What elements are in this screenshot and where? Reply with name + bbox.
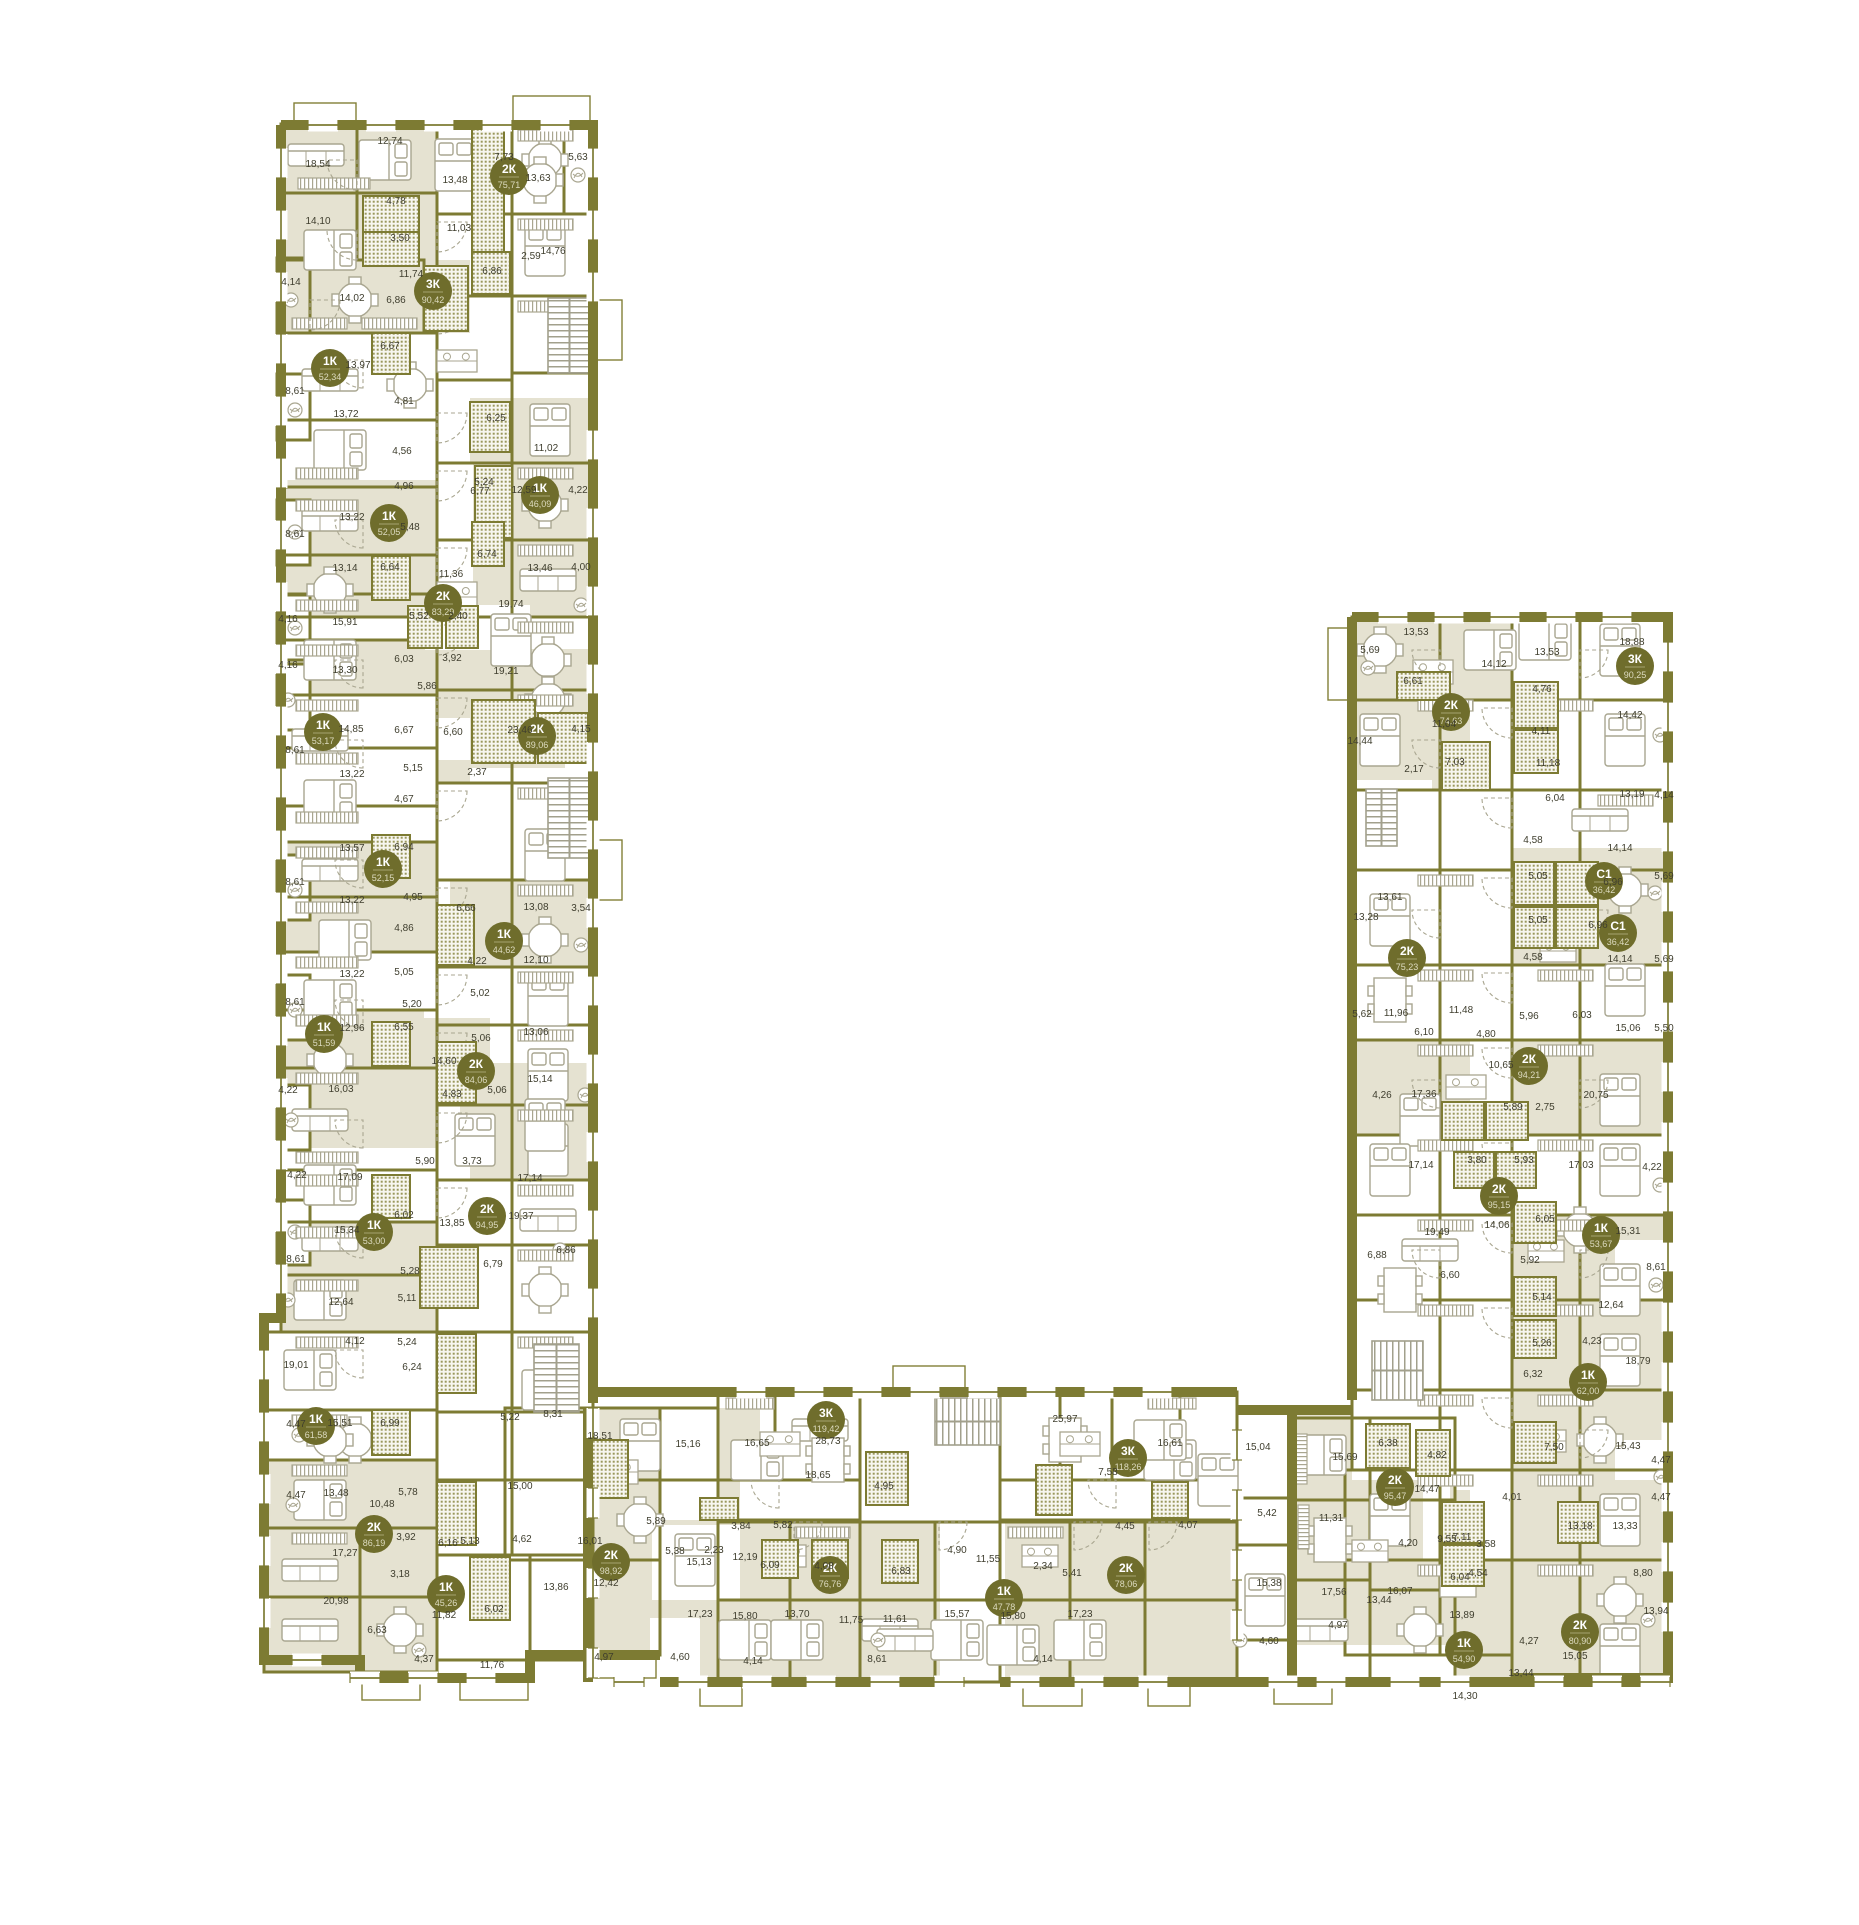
- svg-text:2,23: 2,23: [704, 1545, 724, 1556]
- svg-text:17,09: 17,09: [337, 1172, 362, 1183]
- svg-text:6,09: 6,09: [760, 1560, 780, 1571]
- svg-text:4,67: 4,67: [394, 794, 414, 805]
- svg-text:13,53: 13,53: [1403, 627, 1428, 638]
- svg-text:14,12: 14,12: [1481, 659, 1506, 670]
- svg-text:4,14: 4,14: [1033, 1654, 1053, 1665]
- svg-text:5,20: 5,20: [402, 999, 422, 1010]
- svg-text:5,06: 5,06: [487, 1085, 507, 1096]
- svg-text:4,16: 4,16: [278, 614, 298, 625]
- svg-text:1К: 1К: [439, 1580, 454, 1594]
- svg-text:14,02: 14,02: [339, 293, 364, 304]
- svg-text:3,58: 3,58: [1476, 1539, 1496, 1550]
- svg-text:95,15: 95,15: [1488, 1200, 1511, 1210]
- svg-text:4,86: 4,86: [394, 923, 414, 934]
- svg-text:61,58: 61,58: [305, 1430, 328, 1440]
- svg-text:11,96: 11,96: [1384, 1008, 1409, 1019]
- svg-text:13,44: 13,44: [1366, 1595, 1391, 1606]
- svg-text:4,76: 4,76: [1532, 684, 1552, 695]
- svg-text:3,92: 3,92: [442, 653, 462, 664]
- svg-text:8,61: 8,61: [1646, 1262, 1666, 1273]
- svg-text:90,42: 90,42: [422, 295, 445, 305]
- svg-text:5,89: 5,89: [646, 1516, 666, 1527]
- svg-text:5,69: 5,69: [1360, 645, 1380, 656]
- svg-text:5,38: 5,38: [665, 1546, 685, 1557]
- svg-text:7,73: 7,73: [494, 152, 514, 163]
- svg-text:5,06: 5,06: [471, 1033, 491, 1044]
- svg-text:6,63: 6,63: [367, 1625, 387, 1636]
- svg-text:13,48: 13,48: [442, 175, 467, 186]
- svg-text:13,22: 13,22: [339, 769, 364, 780]
- svg-text:11,18: 11,18: [1536, 758, 1561, 769]
- svg-text:13,94: 13,94: [1643, 1606, 1668, 1617]
- svg-text:14,42: 14,42: [1617, 710, 1642, 721]
- svg-text:13,33: 13,33: [1612, 1521, 1637, 1532]
- svg-text:4,23: 4,23: [1582, 1336, 1602, 1347]
- svg-text:75,71: 75,71: [498, 180, 521, 190]
- svg-text:6,05: 6,05: [1535, 1214, 1555, 1225]
- svg-text:15,14: 15,14: [527, 1074, 552, 1085]
- svg-text:12,59: 12,59: [511, 485, 536, 496]
- svg-text:4,22: 4,22: [1642, 1162, 1662, 1173]
- svg-text:52,15: 52,15: [372, 873, 395, 883]
- svg-text:13,72: 13,72: [333, 409, 358, 420]
- svg-text:6,24: 6,24: [402, 1362, 422, 1373]
- svg-text:13,22: 13,22: [339, 969, 364, 980]
- svg-text:80,90: 80,90: [1569, 1636, 1592, 1646]
- svg-text:6,86: 6,86: [386, 295, 406, 306]
- svg-text:2К: 2К: [1492, 1182, 1507, 1196]
- svg-text:53,67: 53,67: [1590, 1239, 1613, 1249]
- svg-text:1К: 1К: [376, 855, 391, 869]
- svg-text:14,47: 14,47: [1414, 1484, 1439, 1495]
- svg-text:16,61: 16,61: [1157, 1438, 1182, 1449]
- svg-text:8,80: 8,80: [1633, 1568, 1653, 1579]
- svg-text:7,50: 7,50: [1544, 1442, 1564, 1453]
- svg-text:1К: 1К: [367, 1218, 382, 1232]
- svg-text:4,00: 4,00: [571, 562, 591, 573]
- svg-text:10,65: 10,65: [1488, 1060, 1513, 1071]
- svg-text:3К: 3К: [1628, 652, 1643, 666]
- svg-text:14,14: 14,14: [1607, 843, 1632, 854]
- svg-text:4,26: 4,26: [1372, 1090, 1392, 1101]
- svg-text:5,15: 5,15: [403, 763, 423, 774]
- svg-text:17,14: 17,14: [1408, 1160, 1433, 1171]
- svg-text:51,59: 51,59: [313, 1038, 336, 1048]
- svg-text:3,54: 3,54: [571, 903, 591, 914]
- svg-text:15,57: 15,57: [944, 1609, 969, 1620]
- svg-text:5,05: 5,05: [394, 967, 414, 978]
- svg-text:13,89: 13,89: [1449, 1610, 1474, 1621]
- svg-text:2К: 2К: [604, 1548, 619, 1562]
- svg-text:52,34: 52,34: [319, 372, 342, 382]
- svg-text:62,00: 62,00: [1577, 1386, 1600, 1396]
- svg-text:11,61: 11,61: [883, 1614, 908, 1625]
- svg-text:5,50: 5,50: [1654, 1023, 1674, 1034]
- svg-text:2К: 2К: [1444, 698, 1459, 712]
- svg-text:4,80: 4,80: [1476, 1029, 1496, 1040]
- svg-text:6,88: 6,88: [1367, 1250, 1387, 1261]
- svg-text:90,25: 90,25: [1624, 670, 1647, 680]
- svg-text:2К: 2К: [1119, 1561, 1134, 1575]
- svg-text:15,34: 15,34: [334, 1225, 359, 1236]
- svg-text:11,48: 11,48: [1449, 1005, 1474, 1016]
- svg-text:3,50: 3,50: [390, 233, 410, 244]
- svg-text:5,52: 5,52: [409, 611, 429, 622]
- svg-text:4,97: 4,97: [1328, 1620, 1348, 1631]
- svg-text:4,58: 4,58: [1523, 835, 1543, 846]
- svg-text:12,19: 12,19: [732, 1552, 757, 1563]
- svg-text:4,14: 4,14: [743, 1656, 763, 1667]
- svg-text:12,10: 12,10: [523, 955, 548, 966]
- svg-text:6,55: 6,55: [394, 1022, 414, 1033]
- svg-text:4,14: 4,14: [281, 277, 301, 288]
- svg-text:18,54: 18,54: [305, 159, 330, 170]
- svg-text:118,26: 118,26: [1115, 1462, 1142, 1472]
- svg-text:5,22: 5,22: [500, 1412, 520, 1423]
- svg-text:12,64: 12,64: [328, 1297, 353, 1308]
- svg-text:19,21: 19,21: [493, 666, 518, 677]
- svg-text:2,17: 2,17: [1404, 764, 1424, 775]
- svg-text:13,30: 13,30: [332, 665, 357, 676]
- svg-text:17,27: 17,27: [332, 1548, 357, 1559]
- svg-text:3К: 3К: [1121, 1444, 1136, 1458]
- svg-text:4,07: 4,07: [1178, 1520, 1198, 1531]
- svg-text:6,16: 6,16: [438, 1538, 458, 1549]
- svg-text:5,92: 5,92: [1520, 1255, 1540, 1266]
- svg-text:6,02: 6,02: [484, 1604, 504, 1615]
- svg-text:13,86: 13,86: [543, 1582, 568, 1593]
- svg-text:14,44: 14,44: [1347, 736, 1372, 747]
- svg-text:15,38: 15,38: [1256, 1578, 1281, 1589]
- svg-text:7,03: 7,03: [1445, 757, 1465, 768]
- svg-text:4,60: 4,60: [1259, 1636, 1279, 1647]
- svg-text:4,11: 4,11: [1532, 726, 1551, 737]
- svg-text:12,96: 12,96: [339, 1023, 364, 1034]
- svg-text:1К: 1К: [497, 927, 512, 941]
- svg-text:4,83: 4,83: [442, 1089, 462, 1100]
- svg-text:53,17: 53,17: [312, 736, 335, 746]
- svg-text:15,04: 15,04: [1245, 1442, 1270, 1453]
- svg-text:11,03: 11,03: [447, 223, 472, 234]
- svg-text:2К: 2К: [469, 1057, 484, 1071]
- svg-text:5,05: 5,05: [1528, 915, 1548, 926]
- svg-text:2,75: 2,75: [1535, 1102, 1555, 1113]
- svg-text:11,55: 11,55: [976, 1554, 1001, 1565]
- svg-text:4,22: 4,22: [467, 956, 487, 967]
- svg-text:15,16: 15,16: [675, 1439, 700, 1450]
- svg-text:8,61: 8,61: [285, 997, 305, 1008]
- svg-text:1К: 1К: [323, 354, 338, 368]
- svg-text:94,95: 94,95: [476, 1220, 499, 1230]
- svg-text:4,95: 4,95: [874, 1481, 894, 1492]
- svg-text:8,61: 8,61: [285, 877, 305, 888]
- svg-text:11,74: 11,74: [399, 269, 424, 280]
- svg-text:6,96: 6,96: [1588, 920, 1608, 931]
- svg-text:78,06: 78,06: [1115, 1579, 1138, 1589]
- svg-text:18,79: 18,79: [1625, 1356, 1650, 1367]
- svg-text:13,57: 13,57: [339, 843, 364, 854]
- svg-text:6,03: 6,03: [1572, 1010, 1592, 1021]
- svg-text:4,58: 4,58: [1523, 952, 1543, 963]
- svg-text:3,92: 3,92: [396, 1532, 416, 1543]
- svg-text:18,88: 18,88: [1619, 637, 1644, 648]
- svg-text:19,49: 19,49: [1424, 1227, 1449, 1238]
- svg-text:54,90: 54,90: [1453, 1654, 1476, 1664]
- svg-text:5,96: 5,96: [1519, 1011, 1539, 1022]
- svg-text:5,82: 5,82: [773, 1520, 793, 1531]
- svg-text:15,69: 15,69: [1332, 1452, 1357, 1463]
- svg-text:11,31: 11,31: [1319, 1513, 1344, 1524]
- svg-text:13,28: 13,28: [1353, 912, 1378, 923]
- svg-text:4,82: 4,82: [1427, 1450, 1447, 1461]
- svg-text:4,01: 4,01: [1502, 1492, 1522, 1503]
- svg-text:13,61: 13,61: [1377, 892, 1402, 903]
- svg-text:8,61: 8,61: [285, 386, 305, 397]
- svg-text:18,51: 18,51: [587, 1431, 612, 1442]
- svg-text:4,78: 4,78: [386, 196, 406, 207]
- svg-text:15,00: 15,00: [507, 1481, 532, 1492]
- svg-text:5,05: 5,05: [1528, 871, 1548, 882]
- svg-text:23,46: 23,46: [507, 725, 532, 736]
- svg-text:5,62: 5,62: [1352, 1009, 1372, 1020]
- svg-text:15,05: 15,05: [1562, 1651, 1587, 1662]
- svg-text:95,47: 95,47: [1384, 1491, 1407, 1501]
- svg-text:11,76: 11,76: [480, 1660, 505, 1671]
- svg-text:13,46: 13,46: [527, 563, 552, 574]
- svg-text:11,82: 11,82: [432, 1610, 457, 1621]
- svg-text:4,14: 4,14: [1654, 790, 1674, 801]
- svg-text:13,18: 13,18: [1567, 1521, 1592, 1532]
- svg-text:20,98: 20,98: [323, 1596, 348, 1607]
- svg-text:16,01: 16,01: [577, 1536, 602, 1547]
- svg-text:46,09: 46,09: [529, 499, 552, 509]
- svg-text:4,22: 4,22: [287, 1170, 307, 1181]
- svg-text:14,14: 14,14: [1607, 954, 1632, 965]
- svg-text:1К: 1К: [1594, 1221, 1609, 1235]
- svg-text:2К: 2К: [1573, 1618, 1588, 1632]
- svg-text:1К: 1К: [1457, 1636, 1472, 1650]
- svg-text:4,54: 4,54: [1468, 1568, 1488, 1579]
- svg-text:5,42: 5,42: [1257, 1508, 1277, 1519]
- svg-text:89,06: 89,06: [526, 740, 549, 750]
- svg-text:4,47: 4,47: [1651, 1455, 1671, 1466]
- svg-text:6,96: 6,96: [1603, 877, 1623, 888]
- svg-text:4,47: 4,47: [1651, 1492, 1671, 1503]
- svg-text:15,91: 15,91: [332, 617, 357, 628]
- svg-text:6,32: 6,32: [1523, 1369, 1543, 1380]
- svg-text:5,63: 5,63: [568, 152, 588, 163]
- svg-text:13,44: 13,44: [1508, 1668, 1533, 1679]
- svg-text:4,37: 4,37: [414, 1654, 434, 1665]
- svg-text:28,73: 28,73: [815, 1436, 840, 1447]
- svg-text:15,80: 15,80: [732, 1611, 757, 1622]
- svg-text:4,47: 4,47: [286, 1490, 306, 1501]
- svg-text:3К: 3К: [426, 277, 441, 291]
- svg-text:12,74: 12,74: [377, 136, 402, 147]
- svg-text:8,61: 8,61: [286, 1254, 306, 1265]
- svg-text:4,20: 4,20: [1398, 1538, 1418, 1549]
- svg-text:52,05: 52,05: [378, 527, 401, 537]
- svg-text:5,11: 5,11: [398, 1293, 417, 1304]
- svg-text:7,58: 7,58: [1098, 1467, 1118, 1478]
- svg-text:10,48: 10,48: [369, 1499, 394, 1510]
- svg-text:17,14: 17,14: [517, 1173, 542, 1184]
- svg-text:1К: 1К: [1581, 1368, 1596, 1382]
- svg-text:5,89: 5,89: [1503, 1102, 1523, 1113]
- svg-text:5,86: 5,86: [417, 681, 437, 692]
- svg-text:6,77: 6,77: [470, 486, 490, 497]
- svg-text:2К: 2К: [480, 1202, 495, 1216]
- svg-text:6,79: 6,79: [483, 1259, 503, 1270]
- svg-text:13,22: 13,22: [339, 512, 364, 523]
- svg-text:6,25: 6,25: [486, 413, 506, 424]
- svg-text:13,97: 13,97: [345, 360, 370, 371]
- svg-text:1К: 1К: [316, 718, 331, 732]
- svg-text:11,36: 11,36: [439, 569, 464, 580]
- svg-text:С1: С1: [1610, 919, 1626, 933]
- svg-text:1К: 1К: [317, 1020, 332, 1034]
- svg-text:11,02: 11,02: [534, 443, 559, 454]
- svg-text:2,40: 2,40: [448, 611, 468, 622]
- svg-text:1К: 1К: [309, 1412, 324, 1426]
- svg-text:4,12: 4,12: [345, 1336, 365, 1347]
- svg-text:25,97: 25,97: [1052, 1414, 1077, 1425]
- svg-text:11,75: 11,75: [839, 1615, 864, 1626]
- svg-text:13,08: 13,08: [523, 902, 548, 913]
- svg-text:4,15: 4,15: [571, 724, 591, 735]
- svg-text:2К: 2К: [1522, 1052, 1537, 1066]
- svg-text:2К: 2К: [436, 589, 451, 603]
- svg-text:5,78: 5,78: [398, 1487, 418, 1498]
- svg-text:6,66: 6,66: [456, 903, 476, 914]
- svg-text:4,97: 4,97: [594, 1652, 614, 1663]
- svg-text:5,93: 5,93: [1514, 1155, 1534, 1166]
- svg-text:6,83: 6,83: [891, 1566, 911, 1577]
- svg-text:15,06: 15,06: [1615, 1023, 1640, 1034]
- svg-text:8,61: 8,61: [285, 745, 305, 756]
- svg-text:13,22: 13,22: [339, 895, 364, 906]
- svg-text:13,53: 13,53: [1534, 647, 1559, 658]
- svg-text:5,48: 5,48: [400, 522, 420, 533]
- svg-text:4,27: 4,27: [1519, 1636, 1539, 1647]
- svg-text:2,59: 2,59: [521, 251, 541, 262]
- svg-text:20,75: 20,75: [1583, 1090, 1608, 1101]
- svg-text:4,22: 4,22: [568, 485, 588, 496]
- svg-text:13,70: 13,70: [784, 1609, 809, 1620]
- svg-text:14,76: 14,76: [540, 246, 565, 257]
- svg-text:6,02: 6,02: [394, 1210, 414, 1221]
- svg-text:6,60: 6,60: [443, 727, 463, 738]
- svg-text:6,04: 6,04: [1545, 793, 1565, 804]
- svg-text:3,84: 3,84: [731, 1521, 751, 1532]
- svg-text:17,56: 17,56: [1321, 1587, 1346, 1598]
- svg-text:3К: 3К: [819, 1406, 834, 1420]
- svg-text:12,64: 12,64: [1598, 1300, 1623, 1311]
- svg-text:75,23: 75,23: [1396, 962, 1419, 972]
- svg-text:6,03: 6,03: [394, 654, 414, 665]
- svg-text:5,14: 5,14: [1532, 1292, 1552, 1303]
- svg-text:18,65: 18,65: [805, 1470, 830, 1481]
- svg-text:6,60: 6,60: [1440, 1270, 1460, 1281]
- svg-text:15,13: 15,13: [686, 1557, 711, 1568]
- svg-text:5,13: 5,13: [460, 1536, 480, 1547]
- svg-text:15,80: 15,80: [1000, 1611, 1025, 1622]
- svg-text:6,38: 6,38: [1378, 1438, 1398, 1449]
- svg-text:119,42: 119,42: [813, 1424, 840, 1434]
- svg-text:3,80: 3,80: [1467, 1155, 1487, 1166]
- svg-text:3,73: 3,73: [462, 1156, 482, 1167]
- svg-text:19,74: 19,74: [498, 599, 523, 610]
- svg-text:4,96: 4,96: [394, 481, 414, 492]
- svg-text:6,61: 6,61: [1403, 676, 1423, 687]
- svg-text:2,37: 2,37: [467, 767, 487, 778]
- svg-text:94,21: 94,21: [1518, 1070, 1541, 1080]
- svg-text:19,01: 19,01: [283, 1360, 308, 1371]
- svg-text:5,69: 5,69: [1654, 954, 1674, 965]
- svg-text:4,62: 4,62: [512, 1534, 532, 1545]
- svg-text:6,86: 6,86: [482, 266, 502, 277]
- svg-text:2К: 2К: [502, 162, 517, 176]
- svg-text:15,31: 15,31: [1615, 1226, 1640, 1237]
- svg-text:5,41: 5,41: [1062, 1568, 1082, 1579]
- svg-text:4,16: 4,16: [278, 660, 298, 671]
- svg-text:19,37: 19,37: [508, 1211, 533, 1222]
- svg-text:5,24: 5,24: [397, 1337, 417, 1348]
- svg-text:11,04: 11,04: [1432, 719, 1457, 730]
- svg-text:6,67: 6,67: [394, 725, 414, 736]
- svg-text:6,67: 6,67: [380, 341, 400, 352]
- svg-text:5,26: 5,26: [1532, 1338, 1552, 1349]
- svg-text:6,04: 6,04: [1450, 1572, 1470, 1583]
- svg-text:6,74: 6,74: [477, 549, 497, 560]
- svg-text:4,22: 4,22: [278, 1085, 298, 1096]
- svg-text:3,18: 3,18: [390, 1569, 410, 1580]
- svg-text:6,99: 6,99: [380, 1418, 400, 1429]
- svg-text:5,90: 5,90: [415, 1156, 435, 1167]
- svg-text:2К: 2К: [1400, 944, 1415, 958]
- svg-text:16,65: 16,65: [744, 1438, 769, 1449]
- svg-text:5,02: 5,02: [470, 988, 490, 999]
- svg-text:84,06: 84,06: [465, 1075, 488, 1085]
- svg-text:17,03: 17,03: [1568, 1160, 1593, 1171]
- svg-text:76,76: 76,76: [819, 1579, 842, 1589]
- svg-text:2К: 2К: [1388, 1473, 1403, 1487]
- svg-text:14,30: 14,30: [1452, 1691, 1477, 1702]
- svg-text:5,28: 5,28: [400, 1266, 420, 1277]
- svg-text:13,48: 13,48: [323, 1488, 348, 1499]
- svg-text:13,14: 13,14: [332, 563, 357, 574]
- svg-text:4,81: 4,81: [394, 396, 414, 407]
- svg-text:17,23: 17,23: [1067, 1609, 1092, 1620]
- svg-text:4,56: 4,56: [392, 446, 412, 457]
- svg-text:2,34: 2,34: [1033, 1561, 1053, 1572]
- svg-text:6,10: 6,10: [1414, 1027, 1434, 1038]
- svg-text:8,61: 8,61: [285, 529, 305, 540]
- svg-text:17,36: 17,36: [1411, 1089, 1436, 1100]
- svg-text:4,47: 4,47: [286, 1419, 306, 1430]
- svg-text:8,61: 8,61: [867, 1654, 887, 1665]
- svg-text:15,51: 15,51: [327, 1418, 352, 1429]
- svg-text:6,86: 6,86: [556, 1245, 576, 1256]
- svg-text:4,60: 4,60: [670, 1652, 690, 1663]
- svg-text:13,85: 13,85: [439, 1218, 464, 1229]
- svg-text:4,95: 4,95: [403, 892, 423, 903]
- svg-text:14,06: 14,06: [1484, 1220, 1509, 1231]
- svg-text:16,03: 16,03: [328, 1084, 353, 1095]
- svg-text:86,19: 86,19: [363, 1538, 386, 1548]
- svg-text:98,92: 98,92: [600, 1566, 623, 1576]
- svg-text:14,85: 14,85: [338, 724, 363, 735]
